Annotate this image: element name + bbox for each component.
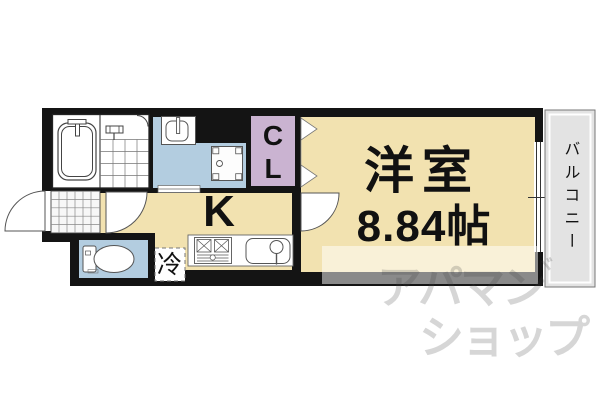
refrigerator-label: 冷: [157, 252, 182, 278]
genkan-tiles: [51, 191, 100, 233]
bathroom: [53, 115, 150, 189]
washer-pan-icon: [212, 147, 243, 181]
stove-icon: [195, 238, 232, 264]
toilet-icon: [83, 246, 134, 274]
entry-door-swing: [5, 191, 45, 231]
main-room-label: 洋室: [364, 145, 480, 198]
kitchen-label: K: [203, 189, 235, 235]
toilet-room: [70, 233, 155, 286]
closet-label-c: C: [263, 119, 283, 152]
kitchen-counter: [188, 235, 293, 266]
closet-label-l: L: [263, 152, 283, 185]
watermark-line2: ショップ: [419, 301, 587, 366]
main-room-size-label: 8.84帖: [357, 204, 492, 250]
washroom-door: [158, 186, 200, 193]
pipe-space: [195, 110, 247, 143]
balcony-label: バルコニー: [561, 141, 578, 256]
closet-label: C L: [263, 119, 283, 185]
washroom: [153, 110, 247, 193]
watermark-mark: ヾ: [536, 249, 556, 278]
floorplan-image: 洋室 8.84帖 K C L 冷 バルコニー アパマン ヾ ショップ: [0, 0, 600, 400]
sink-icon: [246, 239, 290, 265]
washbasin-icon: [162, 117, 196, 145]
